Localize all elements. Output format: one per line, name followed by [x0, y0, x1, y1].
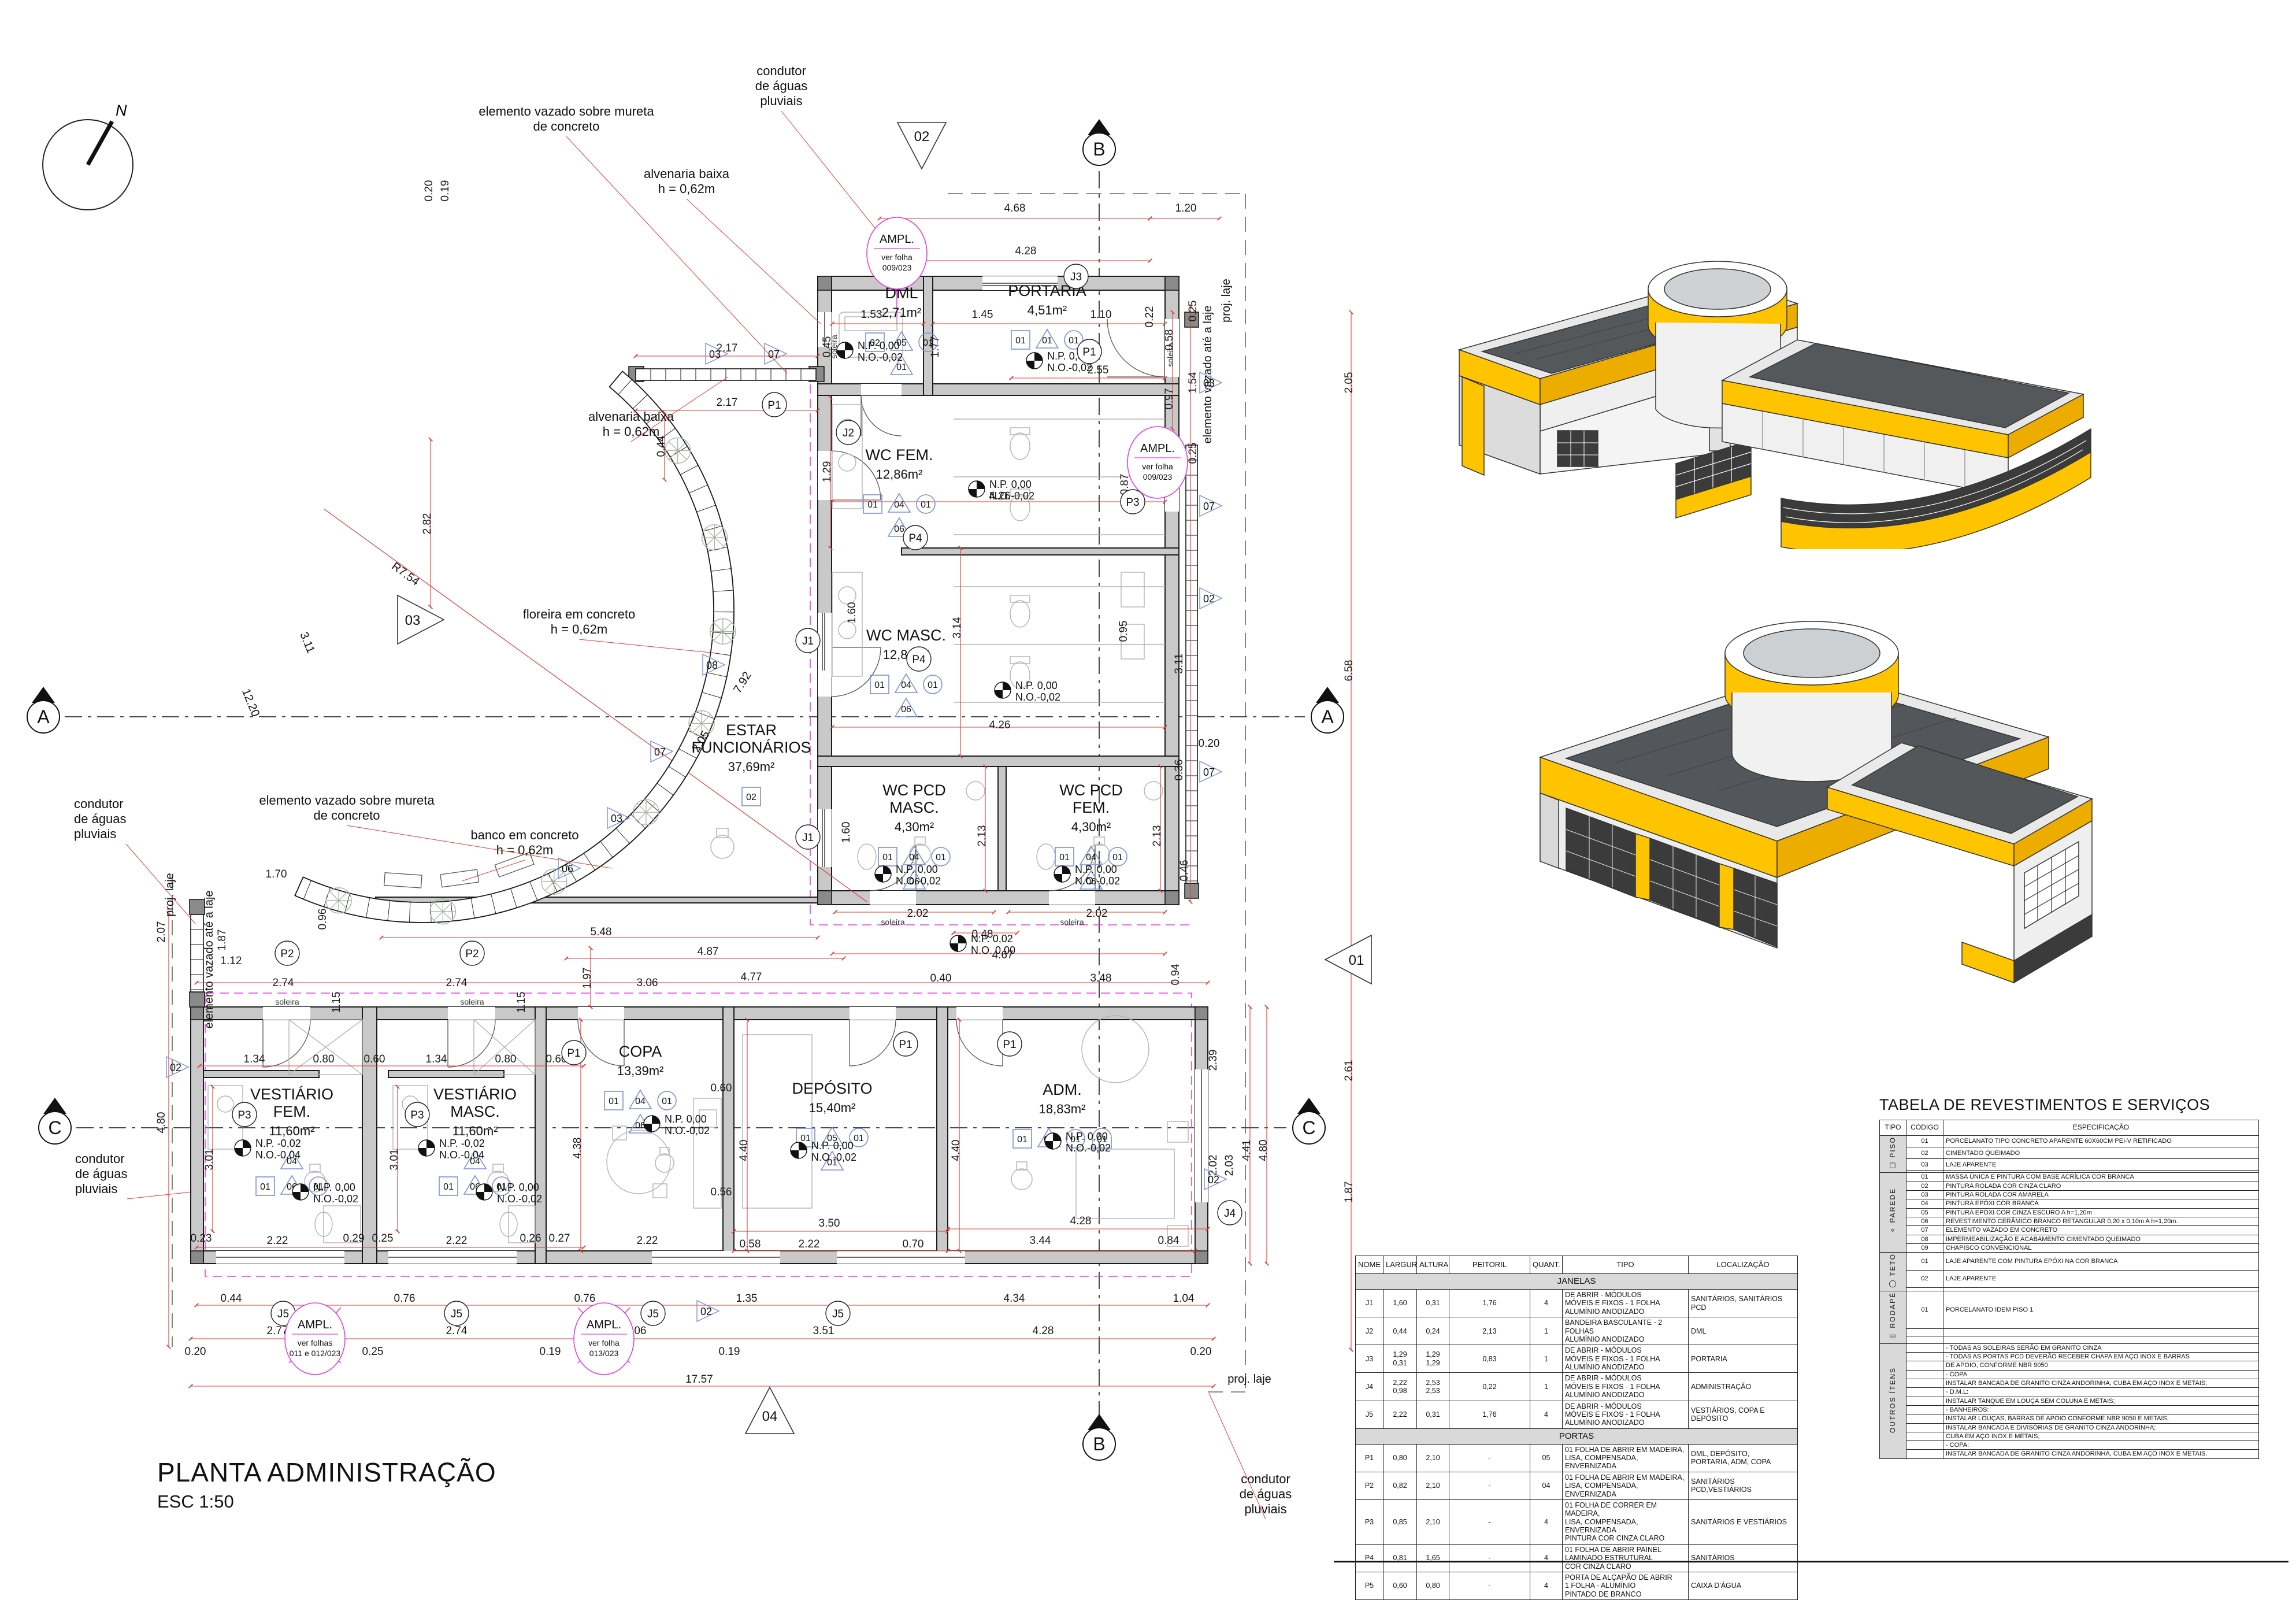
plant-symbol: [702, 525, 727, 550]
porta-cell: 0,80: [1383, 1444, 1417, 1472]
finish-marker-number: 08: [706, 660, 718, 671]
janela-cell: 1,290,31: [1383, 1345, 1417, 1373]
porta-cell: 01 FOLHA DE ABRIR EM MADEIRA,LISA, COMPE…: [1563, 1444, 1689, 1472]
janela-cell: BANDEIRA BASCULANTE - 2FOLHASALUMÍNIO AN…: [1563, 1317, 1689, 1345]
finishes-spec: PINTURA EPÓXI COR CINZA ESCURO A h=1,20m: [1943, 1208, 2259, 1217]
porta-cell: P2: [1356, 1472, 1383, 1499]
room-area: 12,86m²: [876, 467, 923, 482]
dimension-text: 0.80: [313, 1053, 335, 1065]
ampl-sheet-text: ver folha: [1142, 462, 1173, 471]
dimension-text: 0.25: [372, 1232, 394, 1245]
janela-cell: 0,31: [1417, 1290, 1449, 1317]
door-marker-p2: P2: [460, 941, 484, 965]
porta-row: P30,852,10-401 FOLHA DE CORRER EM MADEIR…: [1356, 1499, 1798, 1544]
finishes-row: [1880, 1336, 2259, 1343]
title-block: PLANTA ADMINISTRAÇÃO ESC 1:50: [157, 1457, 496, 1512]
finishes-spec: PINTURA ROLADA COR AMARELA: [1943, 1190, 2259, 1199]
no-value: N.O.-0,02: [811, 1151, 856, 1163]
misc-text: elemento vazado até a laje: [203, 890, 216, 1028]
finish-code: 04: [903, 846, 925, 865]
janela-cell: DML: [1689, 1317, 1798, 1345]
janela-cell: 1: [1530, 1373, 1563, 1401]
room-area: 11,60m²: [452, 1124, 498, 1138]
window-marker-j3: J3: [1064, 264, 1088, 288]
finishes-group-parede: ▵ PAREDE: [1880, 1173, 1906, 1253]
annotation-text: elemento vazado sobre mureta: [479, 104, 654, 118]
dimension-text: 0.20: [423, 180, 435, 202]
finishes-table-block: TABELA DE REVESTIMENTOS E SERVIÇOS TIPOC…: [1879, 1096, 2258, 1459]
finish-code: 01: [439, 1177, 458, 1195]
annotation-text: banco em concreto: [470, 828, 578, 842]
janela-cell: DE ABRIR - MÓDULOSMÓVEIS E FIXOS - 1 FOL…: [1563, 1401, 1689, 1428]
porta-cell: 4: [1530, 1572, 1563, 1599]
finishes-code: 01: [1906, 1253, 1943, 1271]
finishes-group-teto: ◯ TETO: [1880, 1253, 1906, 1291]
janela-cell: J2: [1356, 1317, 1383, 1345]
dimension-text: 4.28: [1070, 1215, 1092, 1227]
finishes-row: 03PINTURA ROLADA COR AMARELA: [1880, 1190, 2259, 1199]
dimension-text: 2.17: [717, 397, 738, 409]
janela-cell: 2,13: [1449, 1317, 1530, 1345]
level-marker: N.P. -0,02N.O.-0,04: [418, 1138, 485, 1161]
door-marker-p3: P3: [232, 1102, 257, 1127]
ampl-label: AMPL.: [587, 1319, 621, 1331]
dimension-text: 1.15: [515, 992, 528, 1013]
dimension-text: 0.60: [711, 1082, 732, 1094]
no-value: N.O. 0,00: [971, 945, 1015, 956]
finish-marker-02: 02: [166, 1057, 188, 1077]
door-marker-p1: P1: [762, 392, 787, 417]
finishes-row: 09CHAPISCO CONVENCIONAL: [1880, 1243, 2259, 1252]
janela-row: J42,220,982,532,530,221DE ABRIR - MÓDULO…: [1356, 1373, 1798, 1401]
np-value: N.P. -0,02: [255, 1138, 301, 1149]
ampl-label: AMPL.: [298, 1319, 332, 1331]
portas-band: PORTAS: [1356, 1428, 1798, 1444]
view-number: 04: [762, 1409, 778, 1424]
finishes-spec: [1943, 1336, 2259, 1343]
no-value: N.O.-0,02: [896, 875, 941, 887]
dimension-text: 0.56: [711, 1186, 732, 1198]
finishes-row: ▢ PISO01PORCELANATO TIPO CONCRETO APAREN…: [1880, 1136, 2259, 1147]
iso-view-bottom: [1471, 572, 2130, 988]
finishes-spec: [1943, 1329, 2259, 1336]
finishes-code: [1906, 1397, 1943, 1405]
dimension-text: 6.58: [1343, 660, 1355, 682]
ampl-sheet-number: 011 e 012/023: [290, 1349, 341, 1358]
dimension-text: 0.84: [1158, 1235, 1179, 1247]
finish-code: 04: [895, 674, 917, 693]
dimension-text: 4.80: [1258, 1140, 1270, 1161]
finishes-row: INSTALAR BANCADA DE GRANITO CINZA ANDORI…: [1880, 1450, 2259, 1458]
janela-cell: 0,22: [1449, 1373, 1530, 1401]
janela-cell: J3: [1356, 1345, 1383, 1373]
finishes-row: INSTALAR LOUÇAS, BARRAS DE APOIO CONFORM…: [1880, 1414, 2259, 1423]
marker-label: P2: [465, 948, 479, 960]
view-number: 03: [405, 613, 421, 628]
dimension-text: 5.48: [591, 926, 612, 938]
janela-cell: 4: [1530, 1290, 1563, 1317]
finish-marker-number: 02: [700, 1306, 712, 1317]
janela-cell: ADMINISTRAÇÃO: [1689, 1373, 1798, 1401]
marker-label: J1: [802, 635, 814, 647]
finish-marker-07: 07: [1200, 761, 1222, 782]
floor-plan: N: [0, 0, 1445, 1622]
bench-concrete: [384, 873, 422, 888]
view-marker-01: 01: [1325, 935, 1371, 984]
annotation-text: de águas: [74, 812, 127, 826]
room-area: 2,71m²: [882, 305, 921, 320]
finishes-row: DE APOIO, CONFORME NBR 9050: [1880, 1361, 2259, 1370]
ampl-sheet-number: 013/023: [589, 1349, 619, 1358]
finishes-spec: LAJE APARENTE: [1943, 1270, 2259, 1288]
finish-marker-number: 03: [709, 349, 721, 360]
marker-label: P1: [767, 399, 781, 412]
annotation-text: pluviais: [75, 1182, 117, 1196]
dimension-text: 2.74: [446, 977, 468, 989]
plan-scale: ESC 1:50: [157, 1491, 496, 1512]
finishes-title: TABELA DE REVESTIMENTOS E SERVIÇOS: [1879, 1096, 2258, 1114]
level-marker: N.P. 0,00N.O.-0,02: [875, 864, 941, 887]
annotation-leader: [126, 844, 195, 924]
np-value: N.P. 0,00: [989, 479, 1032, 490]
finishes-group-piso: ▢ PISO: [1880, 1136, 1906, 1173]
annotation-text: floreira em concreto: [523, 607, 635, 621]
finishes-header: TIPO: [1880, 1120, 1906, 1136]
misc-text: elemento vazado até a laje: [1201, 305, 1214, 443]
finishes-row: 08IMPERMEABILIZAÇÃO E ACABAMENTO CIMENTA…: [1880, 1235, 2259, 1243]
dimension-text: 1.45: [972, 309, 993, 321]
janela-cell: 1,60: [1383, 1290, 1417, 1317]
finish-marker-number: 02: [1208, 1174, 1219, 1186]
janela-cell: 1,76: [1449, 1290, 1530, 1317]
dimension-text: 0.23: [191, 1232, 212, 1245]
dimension-text: 4.38: [572, 1138, 584, 1159]
finishes-row: [1880, 1329, 2259, 1336]
dimension-text: 0.97: [1163, 388, 1175, 410]
finishes-row: - BANHEIROS:: [1880, 1405, 2259, 1414]
finishes-row: INSTALAR BANCADA E DIVISÓRIAS DE GRANITO…: [1880, 1423, 2259, 1432]
marker-label: J5: [647, 1308, 659, 1320]
code-number: 01: [1069, 336, 1079, 346]
plant-symbol: [665, 438, 691, 463]
finishes-spec: MASSA ÚNICA E PINTURA COM BASE ACRÍLICA …: [1943, 1173, 2259, 1182]
schedule-header: PEITORIL: [1449, 1256, 1530, 1274]
code-number: 01: [936, 853, 946, 862]
janela-cell: 0,31: [1417, 1401, 1449, 1428]
porta-cell: -: [1449, 1499, 1530, 1544]
annotation-text: de concreto: [314, 808, 380, 823]
finish-code: 01: [604, 1091, 623, 1110]
annotation-text: h = 0,62m: [658, 182, 715, 196]
marker-label: P3: [1126, 497, 1139, 509]
code-number: 01: [867, 500, 878, 510]
janela-row: J11,600,311,764DE ABRIR - MÓDULOSMÓVEIS …: [1356, 1290, 1798, 1317]
plant-symbol: [430, 899, 455, 924]
dimension-text: 2.02: [907, 908, 929, 920]
janela-cell: 2,22: [1383, 1401, 1417, 1428]
dimension-text: 3.01: [203, 1149, 216, 1171]
code-number: 01: [928, 680, 938, 690]
dimension-text: 3.11: [1173, 653, 1185, 674]
dimension-text: 0.29: [343, 1232, 365, 1245]
ampl-sheet-text: ver folha: [881, 253, 913, 262]
finish-marker-number: 06: [562, 863, 573, 875]
finish-code: 01: [1055, 847, 1074, 866]
no-value: N.O.-0,02: [1047, 362, 1092, 373]
finish-code: 01: [870, 675, 889, 694]
marker-label: P1: [1082, 346, 1096, 358]
dimension-text: 3.44: [1030, 1235, 1051, 1247]
room-area: 18,83m²: [1039, 1102, 1086, 1116]
finishes-spec: INSTALAR BANCADA DE GRANITO CINZA ANDORI…: [1943, 1450, 2259, 1458]
door-marker-p3: P3: [1121, 490, 1145, 514]
section-marker-a: A: [1311, 687, 1344, 733]
room-name: WC PCD: [882, 782, 946, 799]
finishes-spec: INSTALAR TANQUE EM LOUÇA SEM COLUNA E ME…: [1943, 1397, 2259, 1405]
soleira-text: soleira: [1060, 917, 1084, 927]
finishes-spec: - TODAS AS SOLEIRAS SERÃO EM GRANITO CIN…: [1943, 1343, 2259, 1352]
finishes-row: CUBA EM AÇO INOX E METAIS;: [1880, 1432, 2259, 1440]
no-value: N.O.-0,02: [665, 1125, 710, 1136]
porta-cell: -: [1449, 1572, 1530, 1599]
finishes-code: 02: [1906, 1182, 1943, 1190]
dimension-text: 1.04: [1173, 1293, 1195, 1305]
window-marker-j5: J5: [444, 1301, 469, 1325]
dimension-text: 2.03: [1223, 1155, 1236, 1176]
view-number: 02: [914, 129, 930, 145]
dimension-text: 4.80: [155, 1112, 168, 1134]
annotation-text: condutor: [74, 797, 124, 811]
code-number: 01: [1059, 853, 1070, 862]
level-marker: N.P. 0,00N.O.-0,02: [476, 1182, 542, 1205]
finish-marker-number: 07: [1203, 501, 1215, 512]
finishes-code: 01: [1906, 1136, 1943, 1147]
janela-cell: 2,220,98: [1383, 1373, 1417, 1401]
dimension-text: 1.35: [736, 1293, 758, 1305]
porta-cell: CAIXA D'ÁGUA: [1689, 1572, 1798, 1599]
annotation-text: condutor: [75, 1151, 125, 1166]
finishes-group-outros-ítens: OUTROS ÍTENS: [1880, 1343, 1906, 1458]
finishes-spec: INSTALAR BANCADA DE GRANITO CINZA ANDORI…: [1943, 1379, 2259, 1387]
marker-label: P2: [280, 948, 294, 960]
finishes-row: ▭ RODAPÉ01PORCELANATO IDEM PISO 1: [1880, 1291, 2259, 1329]
finishes-header: CÓDIGO: [1906, 1120, 1943, 1136]
janela-cell: 0,24: [1417, 1317, 1449, 1345]
window-marker-j2: J2: [836, 420, 860, 445]
marker-label: J1: [802, 832, 814, 844]
dimension-text: 4.34: [1004, 1293, 1025, 1305]
finishes-code: [1906, 1379, 1943, 1387]
janelas-band: JANELAS: [1356, 1274, 1798, 1290]
finishes-code: 01: [1906, 1291, 1943, 1329]
section-letter: A: [37, 706, 50, 727]
janela-cell: 2,532,53: [1417, 1373, 1449, 1401]
code-number: 01: [896, 362, 907, 372]
dimension-text: 0.27: [549, 1232, 570, 1245]
finish-code: 04: [888, 494, 910, 512]
room-name: WC FEM.: [866, 446, 933, 464]
view-marker-02: 02: [897, 123, 946, 169]
annotation-text: pluviais: [74, 827, 116, 841]
finish-code: 02: [742, 787, 761, 806]
np-value: N.P. 0,00: [1075, 864, 1117, 875]
room-area: 15,40m²: [809, 1101, 856, 1115]
level-marker: N.P. 0,00N.O.-0,02: [292, 1182, 358, 1205]
schedule-header: ALTURA: [1417, 1256, 1449, 1274]
dimension-text: 0.19: [439, 180, 451, 202]
no-value: N.O.-0,02: [1066, 1142, 1111, 1154]
finishes-code: 07: [1906, 1226, 1943, 1235]
dimension-text: 0.46: [1178, 860, 1190, 882]
janela-cell: 0,83: [1449, 1345, 1530, 1373]
marker-label: P1: [1003, 1039, 1016, 1051]
porta-cell: 05: [1530, 1444, 1563, 1472]
room-name: DEPÓSITO: [792, 1079, 872, 1097]
annotation-text: h = 0,62m: [551, 622, 607, 636]
ampl-sheet-number: 009/023: [882, 263, 912, 272]
finish-marker-02: 02: [1200, 588, 1222, 609]
section-letter: B: [1093, 1434, 1105, 1454]
schedule-header: QUANT.: [1530, 1256, 1563, 1274]
misc-text: 3.11: [297, 630, 317, 655]
porta-cell: 04: [1530, 1472, 1563, 1499]
dimension-text: 2.22: [637, 1235, 658, 1247]
dimension-text: 0.25: [362, 1346, 384, 1358]
finishes-code: [1906, 1361, 1943, 1370]
room-name: MASC.: [889, 799, 939, 816]
dimension-text: 2.61: [1343, 1060, 1355, 1082]
dimension-text: 2.39: [1207, 1050, 1219, 1071]
room-area: 4,30m²: [895, 820, 934, 834]
finish-marker-02: 02: [697, 1301, 719, 1321]
dimension-text: 1.87: [1343, 1182, 1355, 1203]
section-marker-c: C: [1293, 1098, 1325, 1144]
finishes-code: [1906, 1432, 1943, 1440]
np-value: N.P. 0,00: [665, 1113, 707, 1125]
porta-row: P20,822,10-0401 FOLHA DE ABRIR EM MADEIR…: [1356, 1472, 1798, 1499]
annotation-text: condutor: [1241, 1472, 1290, 1486]
misc-text: 12.20: [239, 687, 262, 719]
finishes-spec: - BANHEIROS:: [1943, 1405, 2259, 1414]
dimension-text: 0.19: [540, 1346, 561, 1358]
marker-label: J3: [1070, 271, 1082, 283]
annotation-text: de concreto: [533, 119, 600, 134]
annotation-text: h = 0,62m: [496, 843, 553, 857]
misc-text: 7.92: [731, 669, 754, 695]
code-number: 04: [1086, 853, 1096, 862]
schedule-header: TIPO: [1563, 1256, 1689, 1274]
dimension-text: 0.20: [185, 1346, 206, 1358]
finishes-spec: - D.M.L:: [1943, 1388, 2259, 1397]
finishes-spec: CHAPISCO CONVENCIONAL: [1943, 1243, 2259, 1252]
np-value: N.P. 0,02: [971, 933, 1013, 945]
finishes-code: 03: [1906, 1159, 1943, 1171]
finish-marker-number: 07: [768, 349, 780, 360]
finish-marker-number: 07: [1203, 766, 1215, 778]
finishes-spec: ELEMENTO VAZADO EM CONCRETO: [1943, 1226, 2259, 1235]
annotation-leader: [1209, 1393, 1266, 1519]
finishes-spec: PINTURA ROLADA COR CINZA CLARO: [1943, 1182, 2259, 1190]
code-number: 04: [909, 853, 919, 862]
dimension-text: 1.97: [581, 968, 594, 989]
dimension-text: 2.22: [799, 1238, 820, 1250]
room-name: WC MASC.: [866, 627, 946, 644]
door-marker-p4: P4: [907, 647, 931, 671]
finishes-code: 06: [1906, 1217, 1943, 1225]
level-marker: N.P. -0,02N.O.-0,04: [235, 1138, 301, 1161]
schedule-header: LARGURA: [1383, 1256, 1417, 1274]
finish-marker-number: 03: [611, 813, 622, 824]
dimension-text: 3.50: [819, 1217, 840, 1230]
finishes-row: INSTALAR TANQUE EM LOUÇA SEM COLUNA E ME…: [1880, 1397, 2259, 1405]
finishes-code: 03: [1906, 1190, 1943, 1199]
dimension-text: 2.13: [976, 825, 988, 847]
soleira-text: soleira: [275, 997, 299, 1006]
np-value: N.P. 0,00: [497, 1182, 539, 1193]
finishes-row: 02CIMENTADO QUEIMADO: [1880, 1147, 2259, 1159]
np-value: N.P. 0,00: [313, 1182, 355, 1193]
room-area: 13,39m²: [617, 1064, 664, 1078]
code-number: 06: [901, 705, 911, 714]
dimension-text: 4.40: [950, 1140, 962, 1161]
finishes-row: - COPA:: [1880, 1441, 2259, 1450]
dimension-text: 1.54: [1187, 372, 1199, 393]
dimension-text: 3.01: [388, 1149, 400, 1171]
code-number: 01: [1017, 1135, 1028, 1145]
room-name: FUNCIONÁRIOS: [691, 739, 811, 756]
finishes-spec: PINTURA EPÓXI COR BRANCA: [1943, 1199, 2259, 1208]
dimension-text: 1.34: [426, 1053, 447, 1065]
dimension-text: 2.05: [1343, 372, 1355, 394]
np-value: N.P. 0,00: [1066, 1131, 1108, 1142]
porta-cell: 4: [1530, 1499, 1563, 1544]
finishes-code: [1906, 1450, 1943, 1458]
dimension-text: 0.96: [317, 909, 329, 930]
porta-cell: 0,82: [1383, 1472, 1417, 1499]
finish-marker-number: 07: [654, 746, 666, 758]
dimension-text: 4.28: [1033, 1325, 1054, 1337]
janela-cell: DE ABRIR - MÓDULOSMÓVEIS E FIXOS - 1 FOL…: [1563, 1290, 1689, 1317]
level-marker: N.P. 0,00N.O.-0,02: [969, 479, 1034, 502]
schedule-header: LOCALIZAÇÃO: [1689, 1256, 1798, 1274]
dimension-text: 4.77: [741, 971, 762, 983]
dimension-text: 1.60: [846, 602, 858, 624]
finishes-spec: INSTALAR LOUÇAS, BARRAS DE APOIO CONFORM…: [1943, 1414, 2259, 1423]
finishes-code: 01: [1906, 1173, 1943, 1182]
finishes-code: [1906, 1388, 1943, 1397]
code-number: 01: [1112, 853, 1123, 862]
dimension-text: 0.70: [903, 1238, 924, 1250]
dimension-text: 3.51: [813, 1325, 834, 1337]
dimension-text: 0.76: [394, 1293, 416, 1305]
annotation-text: de águas: [1240, 1487, 1292, 1501]
window-marker-j1: J1: [796, 628, 820, 653]
janela-cell: DE ABRIR - MÓDULOSMÓVEIS E FIXOS - 1 FOL…: [1563, 1373, 1689, 1401]
finishes-row: 03LAJE APARENTE: [1880, 1159, 2259, 1171]
window-marker-j5: J5: [641, 1301, 665, 1325]
room-name: COPA: [619, 1043, 662, 1060]
dimension-text: 2.07: [155, 921, 168, 943]
finish-marker-number: 03: [1203, 377, 1215, 389]
porta-cell: P1: [1356, 1444, 1383, 1472]
finishes-code: [1906, 1353, 1943, 1361]
code-number: 04: [894, 500, 904, 510]
dimension-text: 0.58: [740, 1238, 761, 1250]
marker-label: P3: [238, 1109, 251, 1121]
section-marker-b: B: [1083, 1414, 1115, 1460]
view-number: 01: [1349, 953, 1364, 968]
soleira-text: soleira: [1166, 343, 1175, 366]
